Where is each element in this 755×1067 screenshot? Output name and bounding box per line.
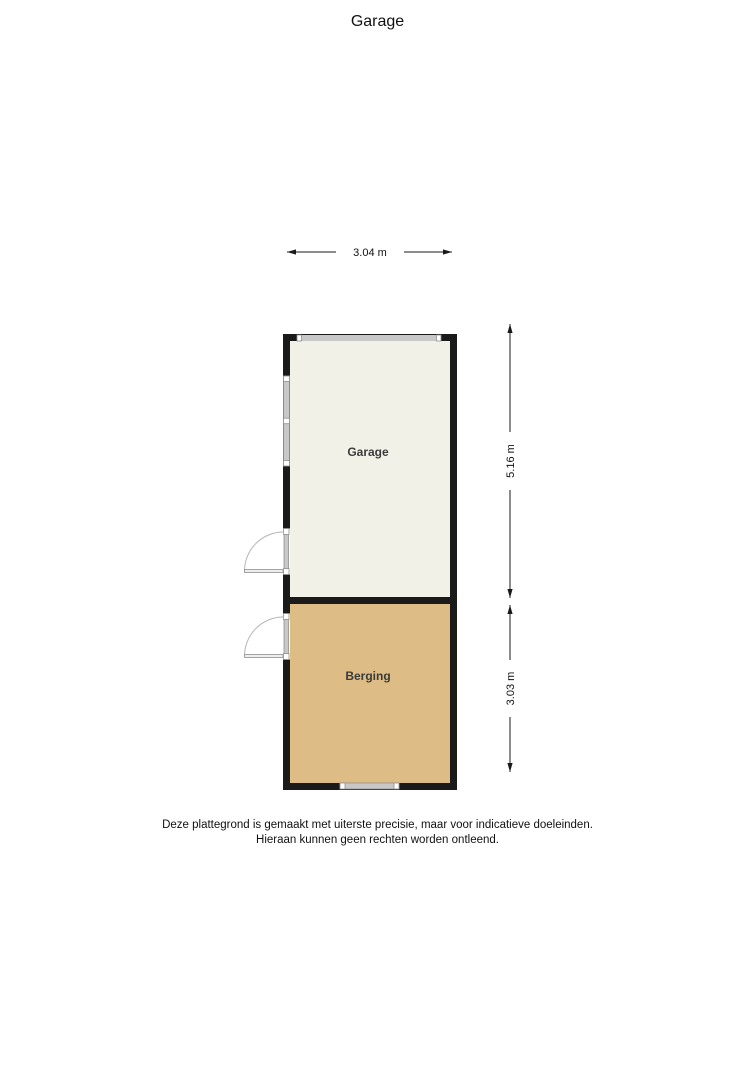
floorplan-drawing: Garage Berging 3.04 m 5.16 m 3.03 m	[0, 0, 755, 1067]
arrowhead-up-icon	[507, 324, 512, 333]
dimension-garage-height: 5.16 m	[503, 324, 518, 598]
window-bottom	[340, 783, 399, 789]
door-jamb	[284, 535, 289, 569]
window-frame-cap	[437, 335, 442, 341]
door-jamb	[284, 620, 289, 654]
room-label-berging: Berging	[345, 669, 390, 683]
door-frame-cap	[284, 529, 290, 535]
window-frame-cap	[284, 376, 290, 382]
dimension-top-width: 3.04 m	[287, 245, 452, 260]
door-garage	[245, 529, 291, 575]
floorplan-page: Garage	[0, 0, 755, 1067]
dimension-berging-height: 3.03 m	[503, 605, 518, 772]
door-frame-cap	[284, 614, 290, 620]
door-leaf	[245, 655, 284, 658]
door-swing-arc	[245, 532, 284, 571]
window-glass	[340, 783, 399, 789]
door-leaf	[245, 570, 284, 573]
room-floor-garage	[290, 341, 450, 597]
disclaimer-line-2: Hieraan kunnen geen rechten worden ontle…	[0, 833, 755, 848]
room-floor-berging	[290, 604, 450, 783]
room-label-garage: Garage	[347, 445, 389, 459]
window-frame-divider	[284, 418, 290, 424]
window-frame-cap	[284, 461, 290, 467]
window-frame-cap	[297, 335, 302, 341]
disclaimer-line-1: Deze plattegrond is gemaakt met uiterste…	[0, 818, 755, 833]
window-frame-cap	[394, 783, 399, 789]
door-berging	[245, 614, 291, 660]
disclaimer: Deze plattegrond is gemaakt met uiterste…	[0, 818, 755, 848]
dimension-label-garage-height: 5.16 m	[505, 444, 517, 478]
dimension-label-width: 3.04 m	[353, 247, 387, 259]
window-frame-cap	[340, 783, 345, 789]
arrowhead-down-icon	[507, 589, 512, 598]
window-top	[297, 335, 441, 341]
window-left	[284, 376, 290, 466]
door-swing-arc	[245, 617, 284, 656]
door-frame-cap	[284, 569, 290, 575]
arrowhead-left-icon	[287, 249, 296, 254]
dimension-label-berging-height: 3.03 m	[505, 672, 517, 706]
window-glass	[297, 335, 441, 341]
arrowhead-up-icon	[507, 605, 512, 614]
arrowhead-down-icon	[507, 763, 512, 772]
door-frame-cap	[284, 654, 290, 660]
arrowhead-right-icon	[443, 249, 452, 254]
